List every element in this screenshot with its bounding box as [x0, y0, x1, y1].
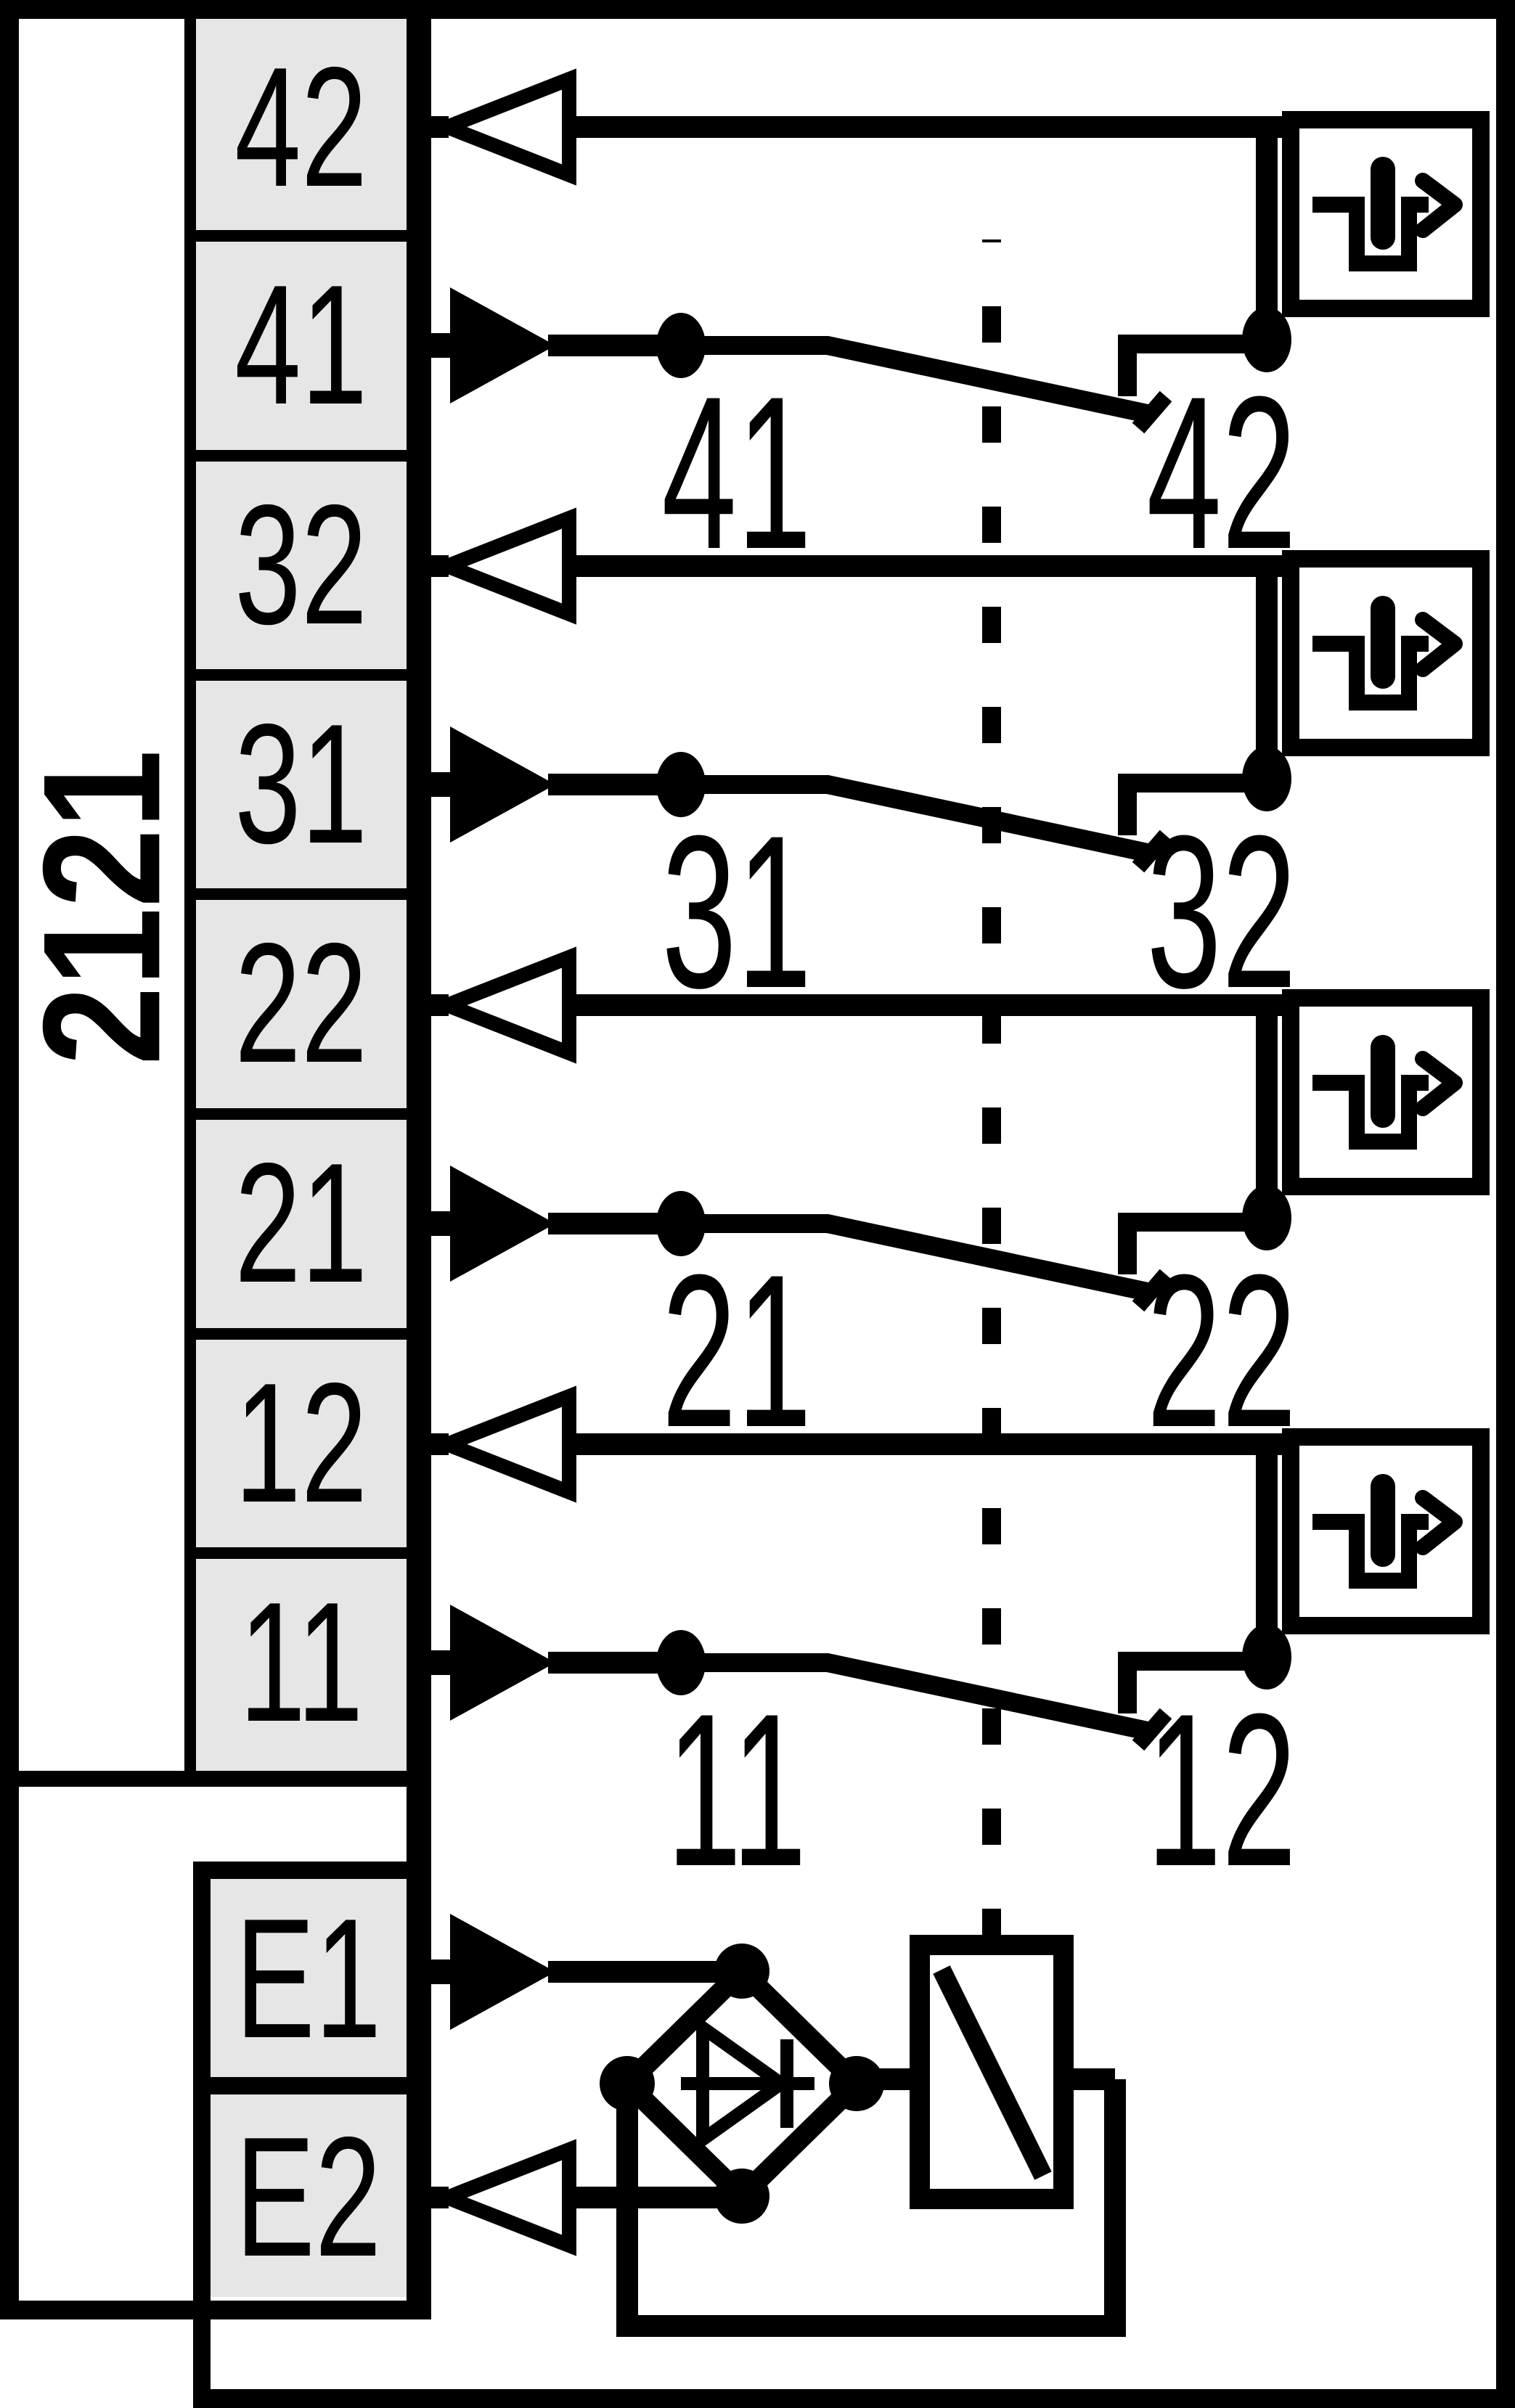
junction-dot	[714, 2169, 769, 2224]
input-direction-arrow-21	[450, 1166, 555, 1282]
junction-dot	[600, 2056, 655, 2111]
contact-group-31-32	[407, 518, 1481, 867]
forced-guided-contact-icon	[1291, 559, 1481, 748]
contact-label-41: 41	[577, 385, 897, 560]
forced-guided-contact-icon	[1291, 120, 1481, 308]
output-direction-arrow-22	[447, 957, 569, 1053]
forced-guided-contact-icon	[1291, 1437, 1481, 1626]
contact-label-22: 22	[1062, 1264, 1381, 1438]
contact-label-31: 31	[577, 824, 897, 999]
relay-coil-icon	[920, 1945, 1063, 2199]
input-direction-arrow-31	[450, 726, 555, 843]
output-direction-arrow-e2	[447, 2150, 569, 2245]
input-direction-arrow-e1	[450, 1914, 555, 2030]
output-direction-arrow-32	[447, 518, 569, 614]
terminal-cell-41: 41	[196, 236, 407, 454]
terminal-cell-e2: E2	[211, 2094, 407, 2298]
coil-circuit	[407, 1914, 1115, 2326]
contact-group-11-12	[407, 1396, 1481, 1745]
junction-dot	[714, 1944, 769, 1999]
contact-label-42: 42	[1062, 385, 1381, 560]
terminal-cell-e1: E1	[211, 1879, 407, 2077]
input-direction-arrow-11	[450, 1605, 555, 1721]
contact-label-32: 32	[1062, 824, 1381, 999]
input-direction-arrow-41	[450, 287, 555, 404]
contact-label-12: 12	[1062, 1703, 1381, 1877]
terminal-cell-22: 22	[196, 894, 407, 1112]
output-direction-arrow-12	[447, 1396, 569, 1492]
forced-guided-contact-icon	[1291, 998, 1481, 1187]
contact-group-21-22	[407, 957, 1481, 1306]
bridge-rectifier-diode-icon	[600, 1944, 884, 2224]
contact-label-21: 21	[577, 1264, 897, 1438]
contact-label-11: 11	[577, 1703, 897, 1877]
contact-group-41-42	[407, 79, 1481, 428]
terminal-cell-21: 21	[196, 1114, 407, 1332]
terminal-cell-42: 42	[196, 18, 407, 236]
terminal-cell-32: 32	[196, 456, 407, 673]
relay-wiring-diagram: 2121 42 41 32 31 22 21 12 11 E1 E2 41 42…	[0, 0, 1515, 2408]
output-direction-arrow-42	[447, 79, 569, 175]
terminal-cell-31: 31	[196, 675, 407, 893]
terminal-cell-11: 11	[196, 1553, 407, 1771]
model-number-label: 2121	[19, 697, 184, 1118]
terminal-cell-12: 12	[196, 1334, 407, 1552]
